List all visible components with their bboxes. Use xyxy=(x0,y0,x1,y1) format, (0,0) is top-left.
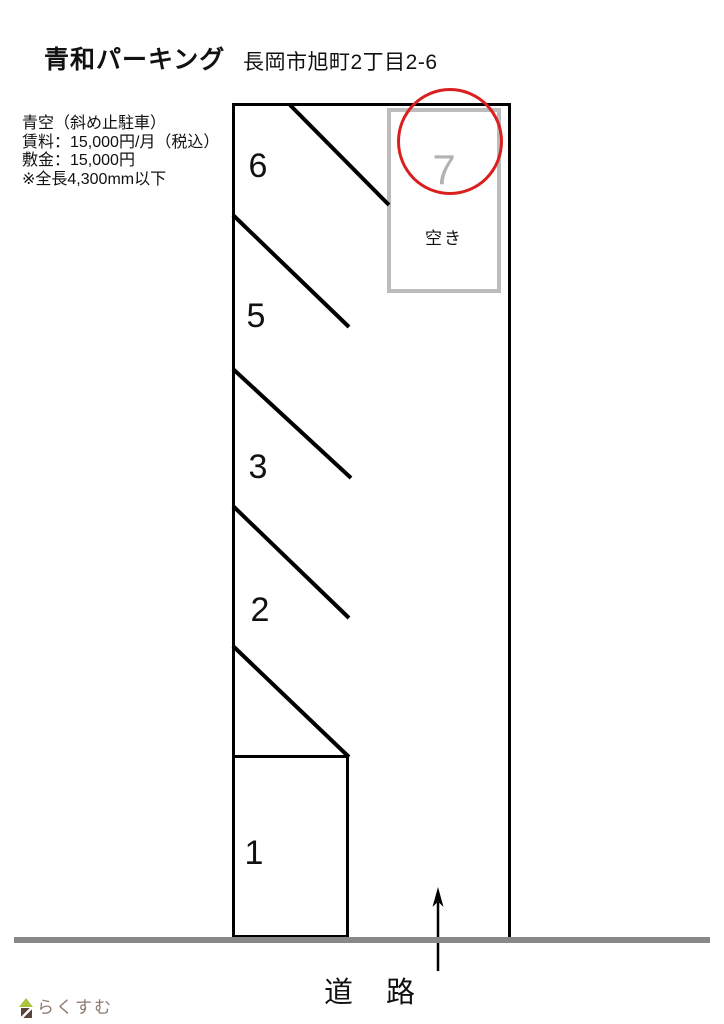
road-boundary-line xyxy=(14,937,710,943)
info-line-length-limit: ※全長4,300mm以下 xyxy=(22,171,219,190)
space-3-number: 3 xyxy=(249,450,268,484)
page-title: 青和パーキング xyxy=(44,40,225,76)
space-2-number: 2 xyxy=(251,593,270,627)
rakusumu-logo: らくすむ xyxy=(19,998,113,1018)
vacant-label: 空き xyxy=(425,224,463,249)
address-text: 長岡市旭町2丁目2-6 xyxy=(243,46,438,76)
logo-text: らくすむ xyxy=(37,998,113,1018)
vacancy-highlight-circle xyxy=(397,88,503,195)
space-1-number: 1 xyxy=(245,836,264,870)
parking-map-page: 青和パーキング 長岡市旭町2丁目2-6 青空（斜め止駐車） 賃料：15,000円… xyxy=(0,0,724,1024)
road-label: 道 路 xyxy=(324,969,417,1011)
info-line-rent: 賃料：15,000円/月（税込） xyxy=(22,134,219,153)
info-line-type: 青空（斜め止駐車） xyxy=(22,115,219,134)
info-line-deposit: 敷金：15,000円 xyxy=(22,152,219,171)
info-block: 青空（斜め止駐車） 賃料：15,000円/月（税込） 敷金：15,000円 ※全… xyxy=(22,115,219,189)
space-6-number: 6 xyxy=(249,149,268,183)
house-icon xyxy=(19,998,33,1018)
space-5-number: 5 xyxy=(247,299,266,333)
